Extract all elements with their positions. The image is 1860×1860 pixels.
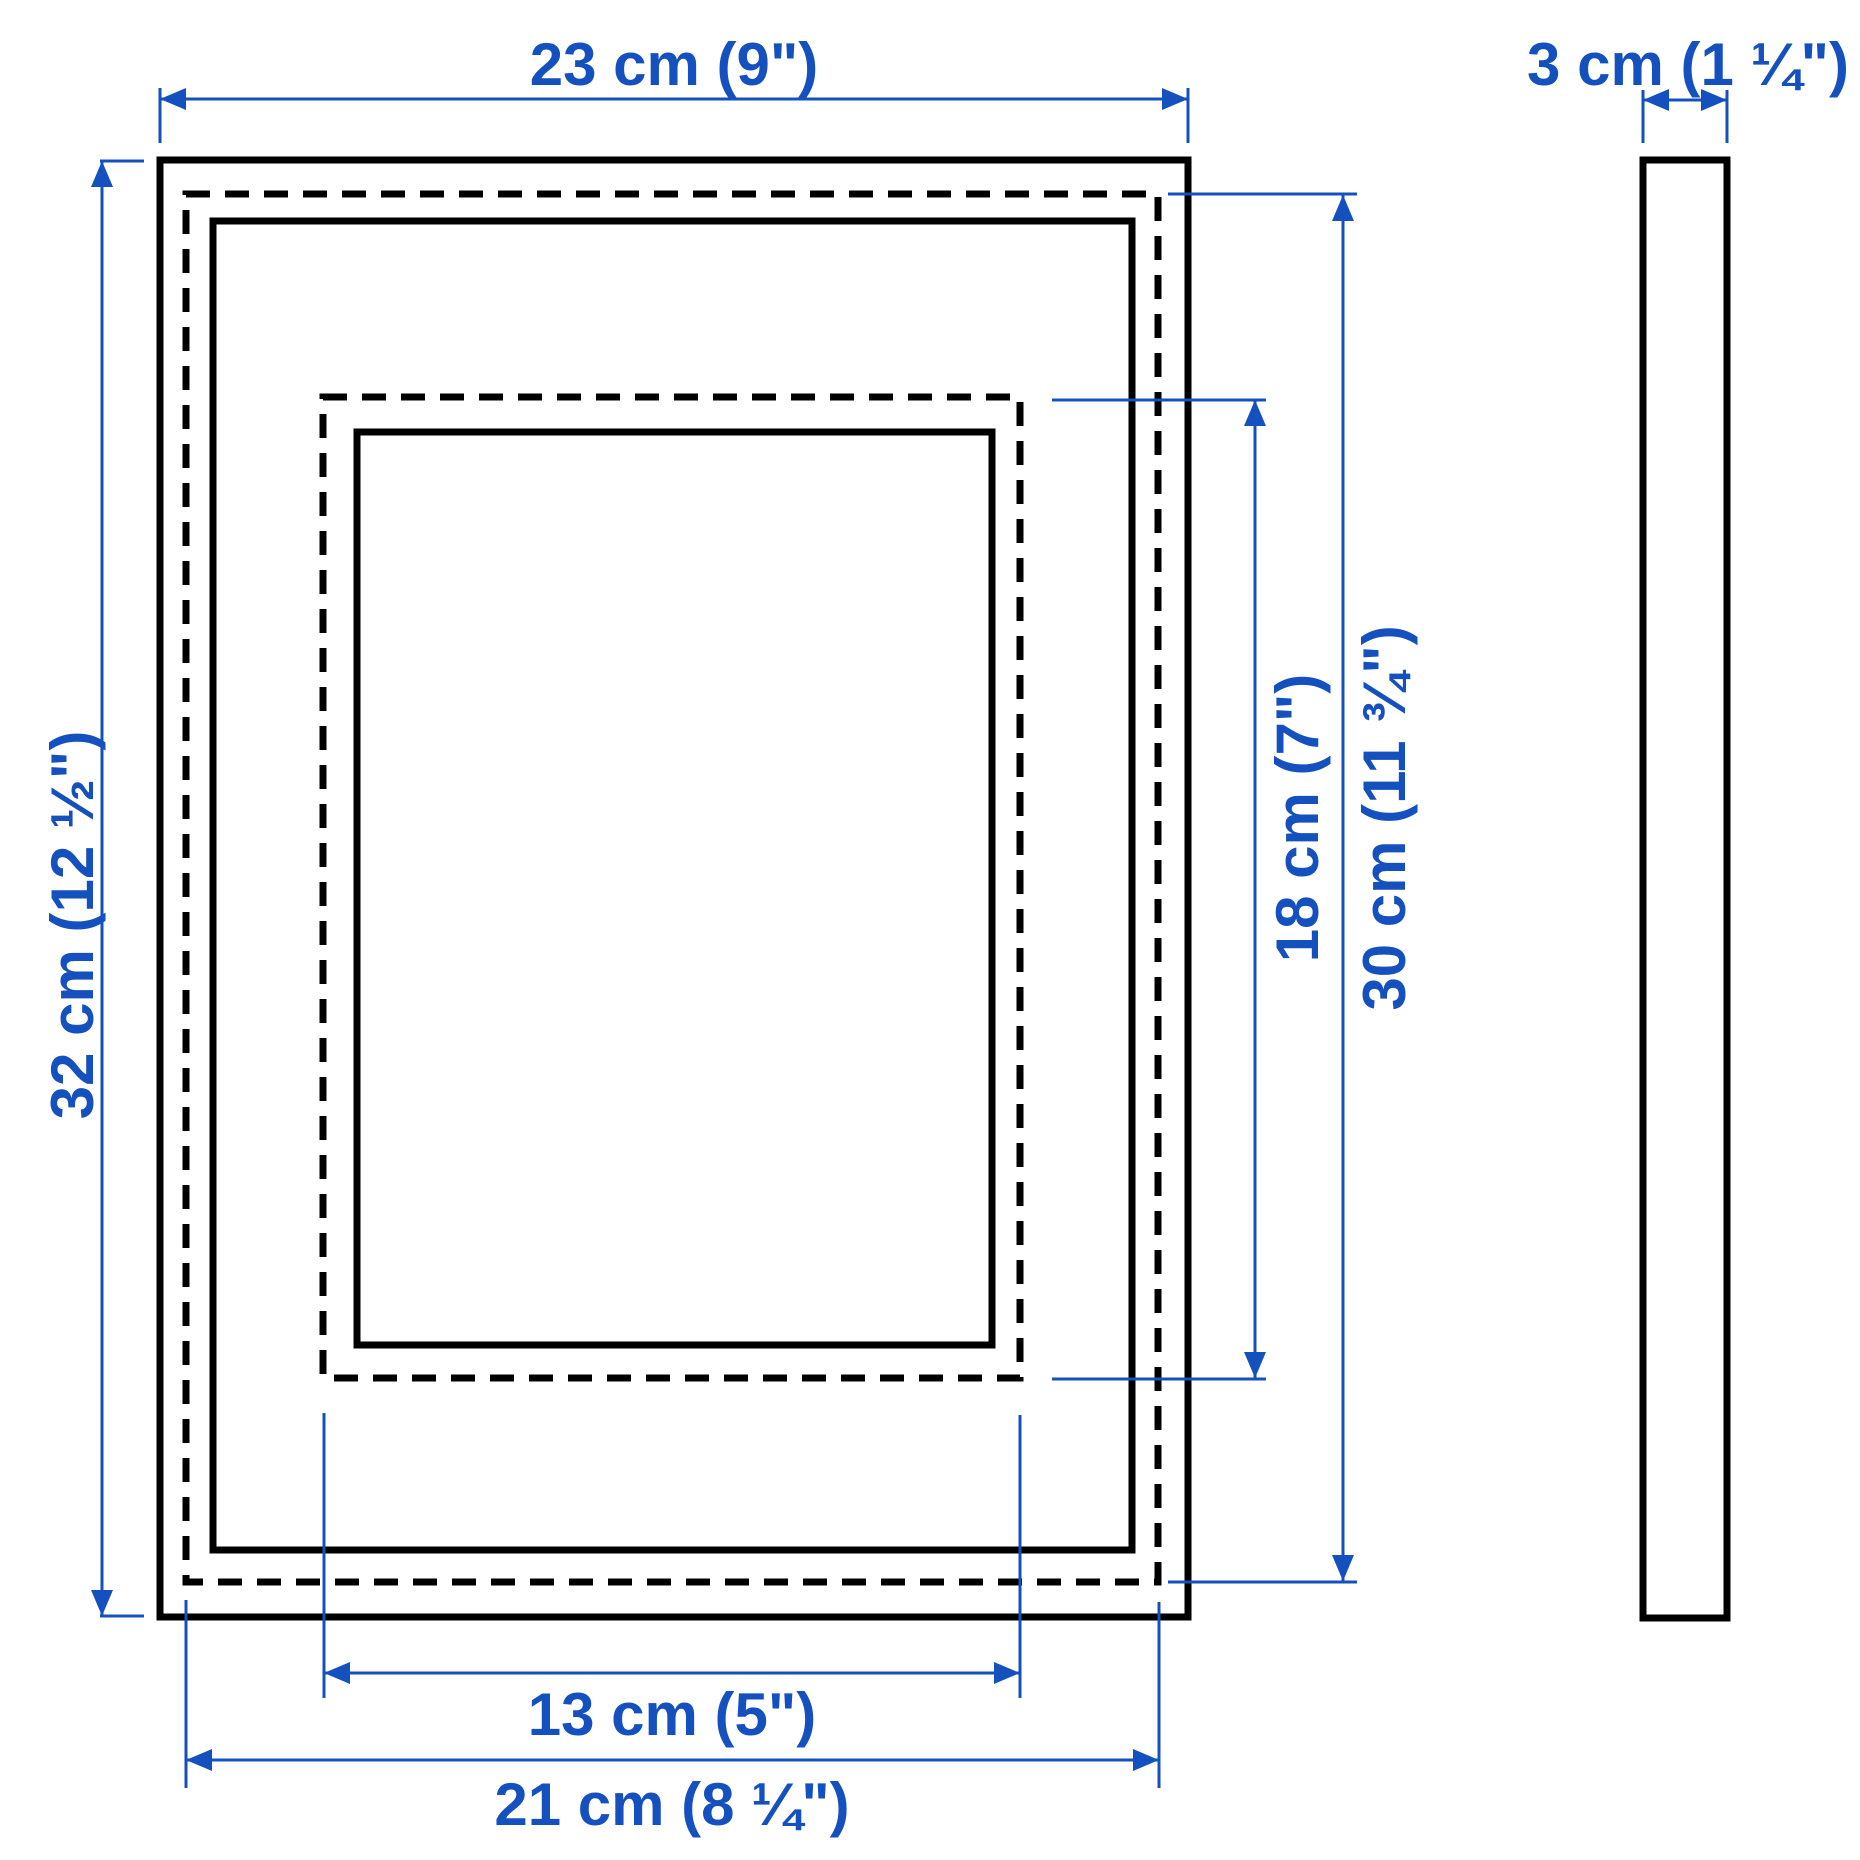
arrowhead-right-icon: [1162, 88, 1188, 110]
side-view: [1643, 160, 1727, 1618]
arrowhead-right-icon: [994, 1662, 1020, 1684]
frame-height-label: 32 cm (12 ½"): [39, 731, 106, 1120]
arrowhead-left-icon: [186, 1749, 212, 1771]
frame-depth-label: 3 cm (1 ¼"): [1527, 31, 1849, 98]
dimension-frame-height: 32 cm (12 ½"): [39, 161, 144, 1616]
arrowhead-up-icon: [91, 161, 113, 187]
side-profile-outline: [1643, 160, 1727, 1618]
dimension-frame-depth: 3 cm (1 ¼"): [1527, 31, 1849, 143]
arrowhead-left-icon: [160, 88, 186, 110]
arrowhead-down-icon: [91, 1590, 113, 1616]
opening-height-label: 18 cm (7"): [1264, 674, 1331, 963]
arrowhead-left-icon: [324, 1662, 350, 1684]
dimension-frame-width: 23 cm (9"): [160, 31, 1188, 143]
picture-width-label: 21 cm (8 ¼"): [494, 1771, 849, 1838]
diagram-canvas: 23 cm (9") 3 cm (1 ¼") 32 cm (12 ½"): [0, 0, 1860, 1860]
front-mat-opening-dashed: [323, 397, 1020, 1378]
frame-width-label: 23 cm (9"): [530, 31, 819, 98]
front-picture-boundary-dashed: [186, 194, 1158, 1582]
arrowhead-up-icon: [1244, 400, 1266, 426]
front-view: [160, 160, 1188, 1617]
front-frame-outer-edge: [160, 160, 1188, 1617]
arrowhead-right-icon: [1133, 1749, 1159, 1771]
arrowhead-up-icon: [1332, 195, 1354, 221]
picture-height-label: 30 cm (11 ¾"): [1351, 625, 1418, 1010]
front-visible-opening-edge: [357, 432, 992, 1345]
frame-dimension-diagram: 23 cm (9") 3 cm (1 ¼") 32 cm (12 ½"): [0, 0, 1860, 1860]
opening-width-label: 13 cm (5"): [528, 1681, 817, 1748]
arrowhead-down-icon: [1244, 1352, 1266, 1378]
arrowhead-down-icon: [1332, 1555, 1354, 1581]
